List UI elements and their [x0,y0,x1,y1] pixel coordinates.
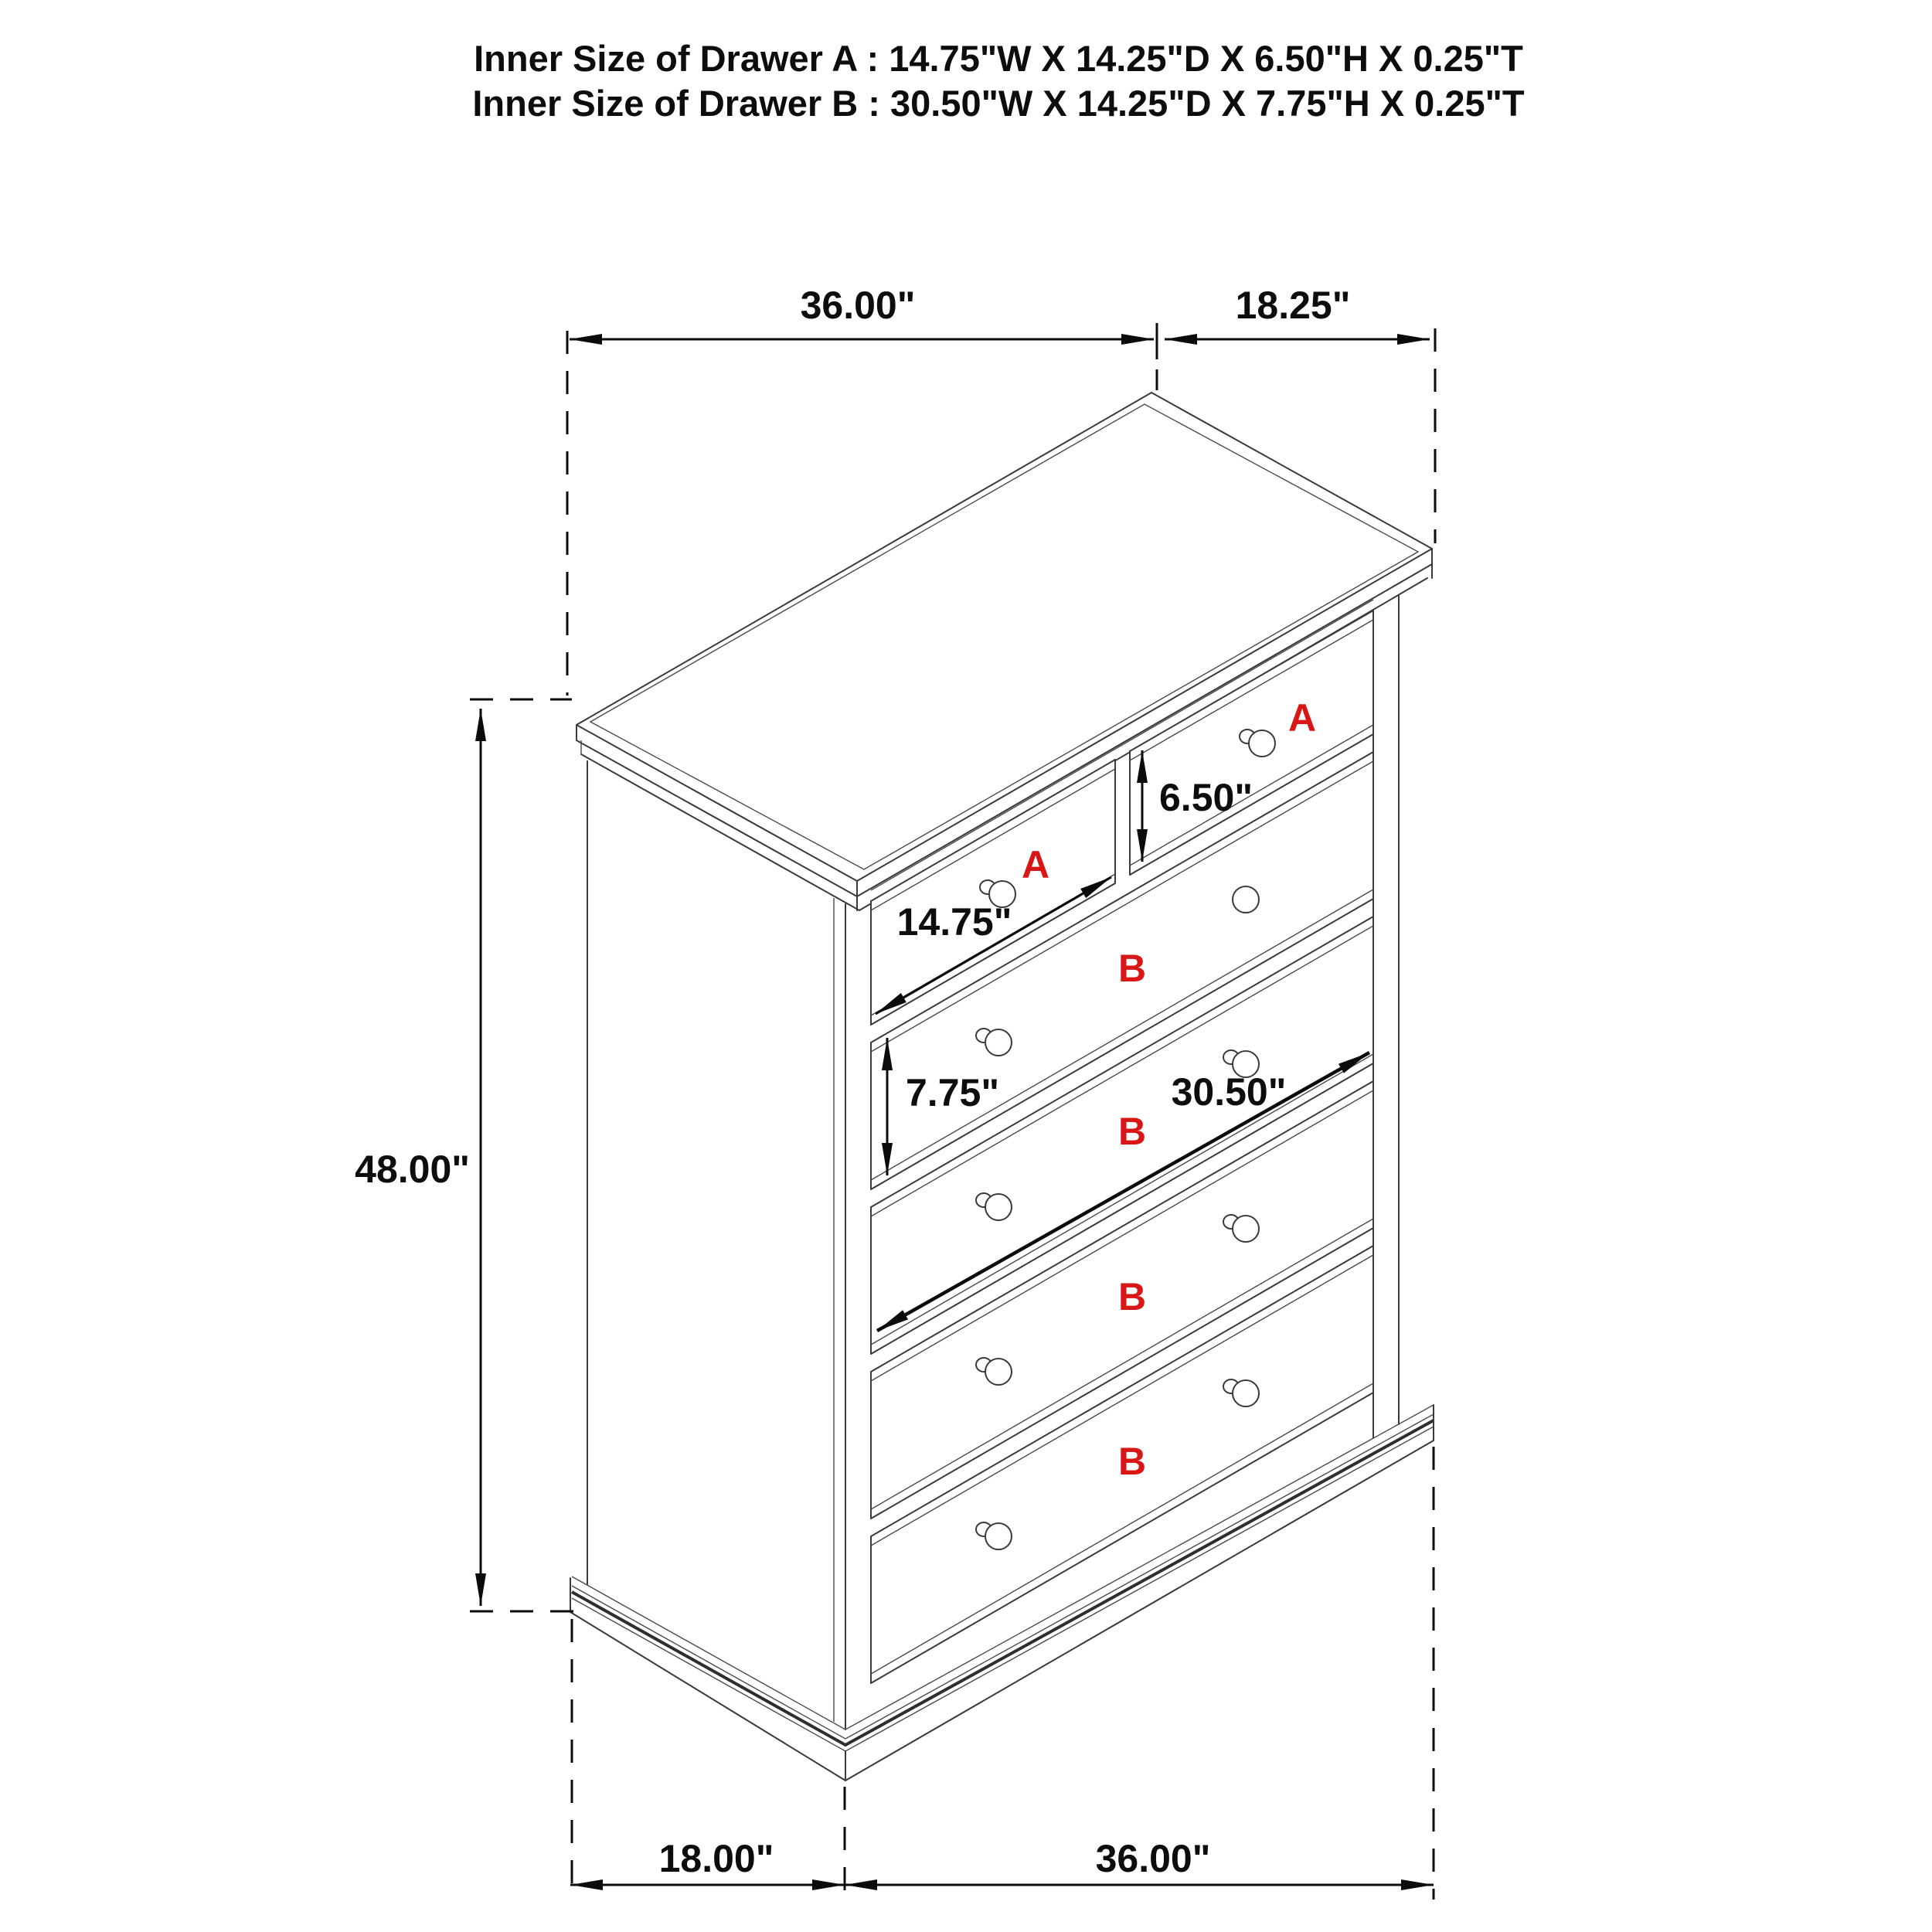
dim-drawer-b-height-label: 7.75" [906,1071,999,1114]
dim-overall-height-label: 48.00" [355,1148,470,1191]
chest-dimension-diagram: Inner Size of Drawer A : 14.75"W X 14.25… [0,0,1932,1932]
dim-top-depth-label: 18.25" [1236,284,1351,327]
knob-b1-right [1233,886,1259,913]
drawer-b1-label: B [1118,947,1146,990]
dim-drawer-b-width-label: 30.50" [1172,1070,1287,1114]
dim-bottom-width: 36.00" [845,1837,1434,1885]
dim-top-depth: 18.25" [1165,284,1430,339]
dim-bottom-width-label: 36.00" [1096,1837,1211,1880]
figure-title-line-a: Inner Size of Drawer A : 14.75"W X 14.25… [474,38,1523,79]
dim-drawer-a-width-label: 14.75" [897,900,1012,944]
drawer-a2-label: A [1288,696,1316,740]
chest-left-side-panel [587,761,845,1730]
dim-top-width-label: 36.00" [801,284,916,327]
diagram-page: Inner Size of Drawer A : 14.75"W X 14.25… [0,0,1932,1932]
drawer-b4-label: B [1118,1440,1146,1483]
drawer-b2-label: B [1118,1110,1146,1153]
drawer-b3-label: B [1118,1275,1146,1318]
dim-bottom-depth: 18.00" [570,1837,845,1885]
dim-overall-height: 48.00" [355,699,573,1611]
drawer-a1-label: A [1022,843,1049,886]
figure-title-line-b: Inner Size of Drawer B : 30.50"W X 14.25… [472,83,1525,124]
dim-top-width: 36.00" [570,284,1154,339]
dim-drawer-a-height-label: 6.50" [1159,776,1253,819]
dim-bottom-depth-label: 18.00" [659,1837,774,1880]
